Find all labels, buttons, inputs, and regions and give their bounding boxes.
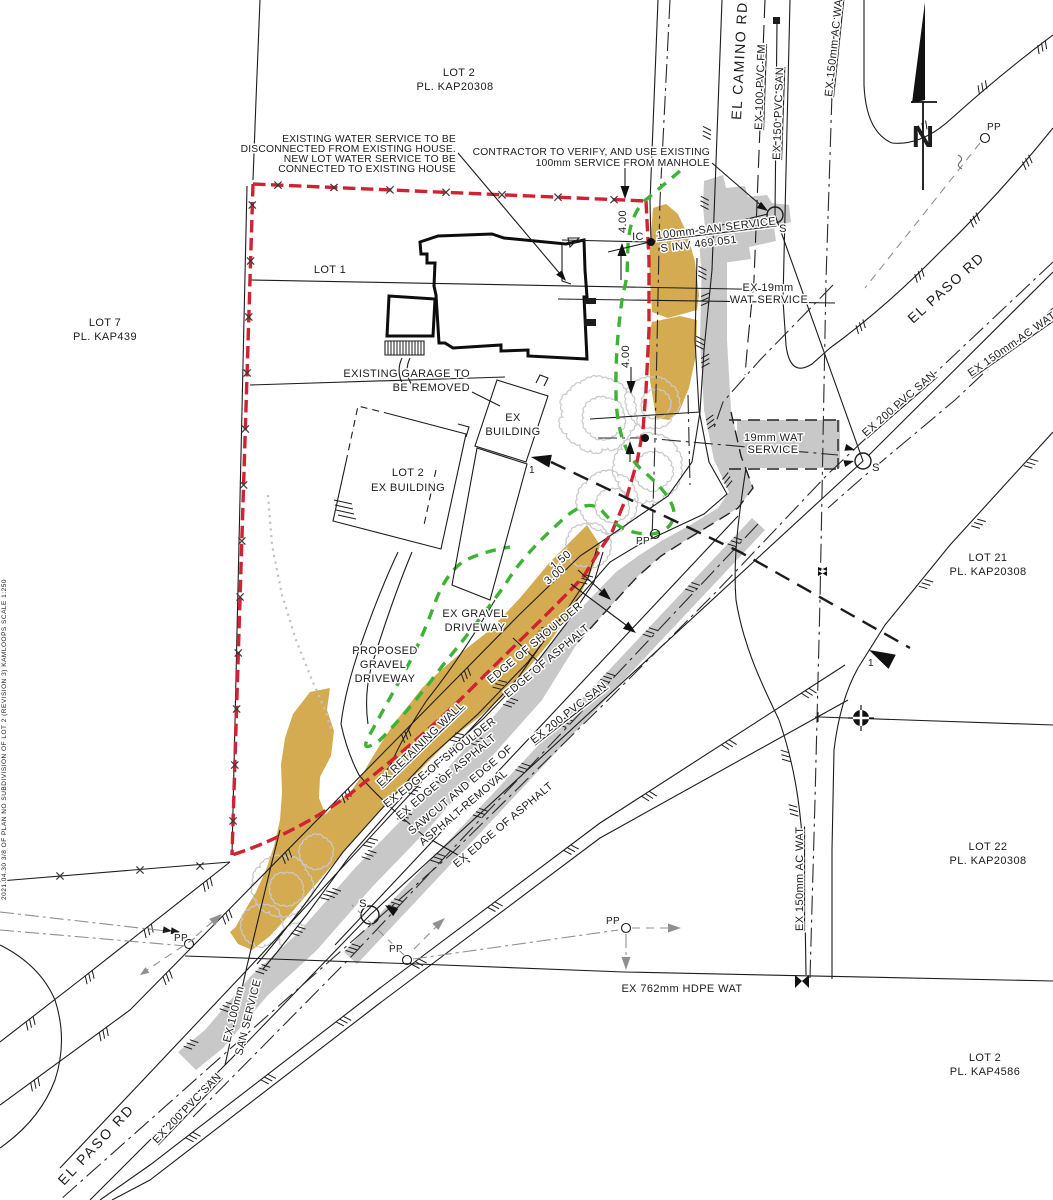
svg-text:PP: PP (389, 944, 403, 955)
svg-text:BUILDING: BUILDING (485, 426, 540, 438)
svg-text:S: S (359, 898, 367, 910)
svg-text:N: N (912, 119, 934, 154)
svg-text:CONTRACTOR TO VERIFY, AND USE: CONTRACTOR TO VERIFY, AND USE EXISTING (473, 147, 710, 158)
svg-text:PL. KAP20308: PL. KAP20308 (417, 81, 494, 93)
svg-text:1: 1 (529, 465, 535, 476)
svg-text:PP: PP (174, 933, 188, 944)
svg-text:PP: PP (636, 536, 650, 547)
svg-text:19mm WAT: 19mm WAT (744, 432, 804, 444)
svg-text:EX: EX (505, 412, 521, 424)
svg-text:LOT 1: LOT 1 (314, 264, 346, 276)
svg-text:EX 19mm: EX 19mm (742, 282, 793, 294)
svg-text:PP: PP (606, 916, 620, 927)
svg-text:EX GRAVEL: EX GRAVEL (442, 608, 507, 620)
svg-text:4.00: 4.00 (620, 345, 632, 368)
svg-text:S: S (779, 223, 787, 235)
svg-text:S: S (872, 462, 880, 474)
svg-text:LOT 2: LOT 2 (392, 467, 424, 479)
svg-text:EX 762mm HDPE WAT: EX 762mm HDPE WAT (621, 983, 742, 995)
svg-text:WAT SERVICE: WAT SERVICE (730, 294, 809, 306)
svg-text:PL. KAP20308: PL. KAP20308 (950, 855, 1027, 867)
svg-text:PP: PP (987, 122, 1001, 133)
svg-text:EX 150mm AC WAT: EX 150mm AC WAT (794, 827, 806, 931)
svg-text:4.00: 4.00 (617, 210, 629, 233)
svg-text:2021.04.30 3/8 OF PLAN NO SU: 2021.04.30 3/8 OF PLAN NO SUBDIVISION OF… (1, 579, 8, 900)
svg-text:PL. KAP20308: PL. KAP20308 (950, 566, 1027, 578)
svg-text:LOT 7: LOT 7 (89, 317, 121, 329)
svg-text:LOT 21: LOT 21 (969, 552, 1008, 564)
svg-text:PROPOSED: PROPOSED (352, 645, 418, 657)
svg-text:EXISTING GARAGE TO: EXISTING GARAGE TO (343, 368, 470, 380)
svg-text:CONNECTED TO EXISTING HOUSE: CONNECTED TO EXISTING HOUSE (278, 164, 456, 175)
svg-text:IC: IC (632, 231, 644, 243)
svg-text:100mm SERVICE FROM MANHOLE: 100mm SERVICE FROM MANHOLE (536, 158, 710, 169)
svg-text:LOT 2: LOT 2 (443, 67, 475, 79)
svg-text:SERVICE: SERVICE (748, 444, 799, 456)
svg-text:GRAVEL: GRAVEL (360, 659, 406, 671)
svg-text:LOT 22: LOT 22 (969, 841, 1008, 853)
svg-text:PL. KAP439: PL. KAP439 (73, 331, 137, 343)
svg-text:PL. KAP4586: PL. KAP4586 (950, 1066, 1020, 1078)
svg-text:EX BUILDING: EX BUILDING (371, 482, 445, 494)
svg-text:1: 1 (868, 658, 874, 669)
svg-text:BE REMOVED: BE REMOVED (393, 382, 470, 394)
svg-text:DRIVEWAY: DRIVEWAY (355, 673, 416, 685)
svg-text:DRIVEWAY: DRIVEWAY (445, 622, 506, 634)
svg-text:LOT 2: LOT 2 (969, 1052, 1001, 1064)
